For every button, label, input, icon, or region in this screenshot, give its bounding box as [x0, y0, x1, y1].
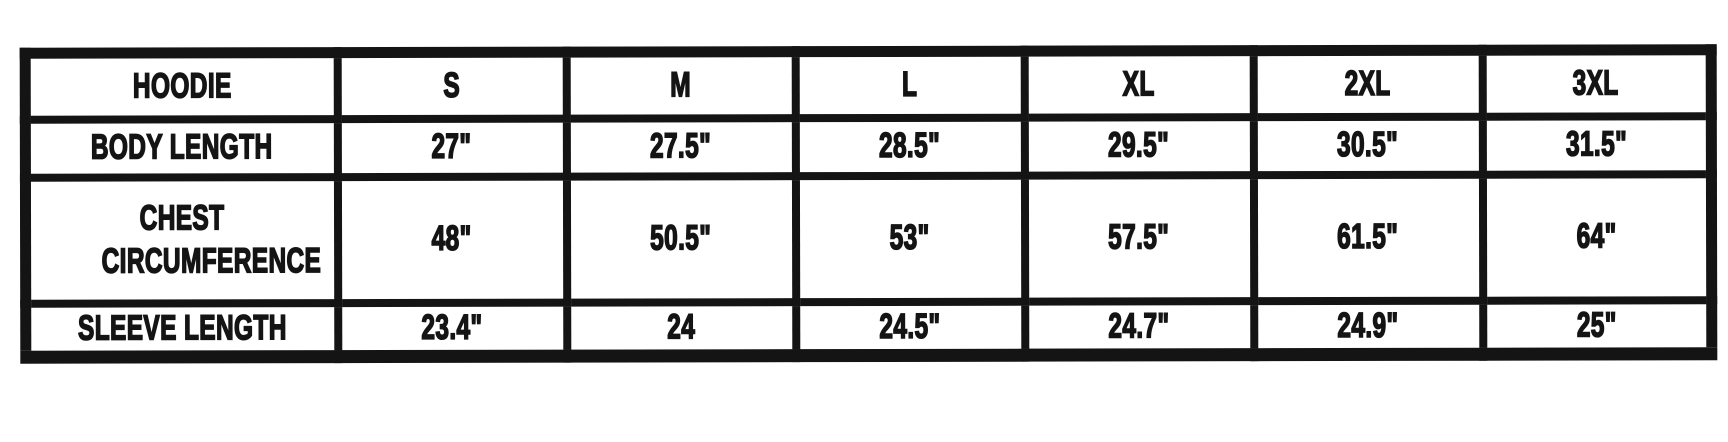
chest-xl-cell: 57.5" [1024, 175, 1253, 301]
size-l-label: L [902, 64, 917, 107]
header-cell-product: HOODIE [25, 53, 337, 120]
header-cell-size-3xl: 3XL [1482, 50, 1711, 116]
chest-s-value: 48" [432, 218, 472, 261]
chest-3xl-cell: 64" [1482, 174, 1711, 300]
size-3xl-label: 3XL [1573, 62, 1619, 105]
sleeve-s-cell: 23.4" [338, 302, 567, 356]
header-cell-size-2xl: 2XL [1253, 50, 1482, 116]
size-2xl-label: 2XL [1345, 63, 1391, 106]
body-length-s-value: 27" [432, 126, 472, 169]
sleeve-xl-value: 24.7" [1109, 305, 1170, 348]
body-length-xl-cell: 29.5" [1024, 117, 1253, 175]
body-length-2xl-cell: 30.5" [1253, 116, 1482, 174]
body-length-l-value: 28.5" [879, 125, 940, 168]
body-length-3xl-value: 31.5" [1566, 124, 1627, 167]
body-length-s-cell: 27" [337, 118, 566, 176]
chest-2xl-value: 61.5" [1337, 216, 1398, 259]
header-row: HOODIE S M L XL 2XL 3XL [25, 50, 1711, 120]
sleeve-m-value: 24 [667, 306, 695, 349]
chest-circumference-label: CHEST CIRCUMFERENCE [102, 197, 263, 283]
sleeve-length-label: SLEEVE LENGTH [78, 307, 287, 350]
body-length-row: BODY LENGTH 27" 27.5" 28.5" 29.5" 30.5" … [25, 116, 1711, 178]
body-length-l-cell: 28.5" [795, 117, 1024, 175]
sleeve-2xl-value: 24.9" [1338, 305, 1399, 348]
product-label: HOODIE [133, 65, 232, 108]
sleeve-3xl-cell: 25" [1483, 300, 1712, 354]
header-cell-size-s: S [337, 52, 566, 118]
body-length-label: BODY LENGTH [91, 126, 273, 169]
body-length-m-value: 27.5" [650, 125, 711, 168]
header-cell-size-m: M [566, 52, 795, 118]
chest-s-cell: 48" [337, 176, 566, 302]
chest-2xl-cell: 61.5" [1253, 174, 1482, 300]
row-label-cell: BODY LENGTH [25, 119, 337, 178]
body-length-3xl-cell: 31.5" [1482, 116, 1711, 174]
row-label-cell: SLEEVE LENGTH [26, 303, 338, 358]
sleeve-l-value: 24.5" [880, 306, 941, 349]
size-s-label: S [443, 65, 460, 108]
sleeve-m-cell: 24 [567, 302, 796, 356]
chest-circumference-row: CHEST CIRCUMFERENCE 48" 50.5" 53" 57.5" … [25, 174, 1711, 304]
chest-l-cell: 53" [795, 175, 1024, 301]
chest-m-cell: 50.5" [566, 176, 795, 302]
sleeve-xl-cell: 24.7" [1025, 301, 1254, 355]
header-cell-size-xl: XL [1024, 51, 1253, 117]
body-length-xl-value: 29.5" [1108, 125, 1169, 168]
sleeve-s-value: 23.4" [422, 307, 483, 350]
chest-xl-value: 57.5" [1109, 217, 1170, 260]
chest-m-value: 50.5" [651, 217, 712, 260]
scanned-sheet-background: HOODIE S M L XL 2XL 3XL BODY LENGTH 27" … [0, 0, 1728, 442]
size-xl-label: XL [1123, 63, 1155, 106]
sleeve-length-row: SLEEVE LENGTH 23.4" 24 24.5" 24.7" 24.9"… [26, 300, 1712, 358]
sleeve-2xl-cell: 24.9" [1254, 300, 1483, 354]
chest-3xl-value: 64" [1576, 216, 1616, 259]
header-cell-size-l: L [795, 51, 1024, 117]
body-length-2xl-value: 30.5" [1337, 124, 1398, 167]
chest-l-value: 53" [890, 217, 930, 260]
sleeve-3xl-value: 25" [1577, 304, 1617, 347]
size-m-label: M [670, 64, 691, 107]
row-label-cell: CHEST CIRCUMFERENCE [25, 177, 337, 304]
sleeve-l-cell: 24.5" [796, 301, 1025, 355]
hoodie-size-chart-table: HOODIE S M L XL 2XL 3XL BODY LENGTH 27" … [20, 44, 1718, 364]
body-length-m-cell: 27.5" [566, 118, 795, 176]
